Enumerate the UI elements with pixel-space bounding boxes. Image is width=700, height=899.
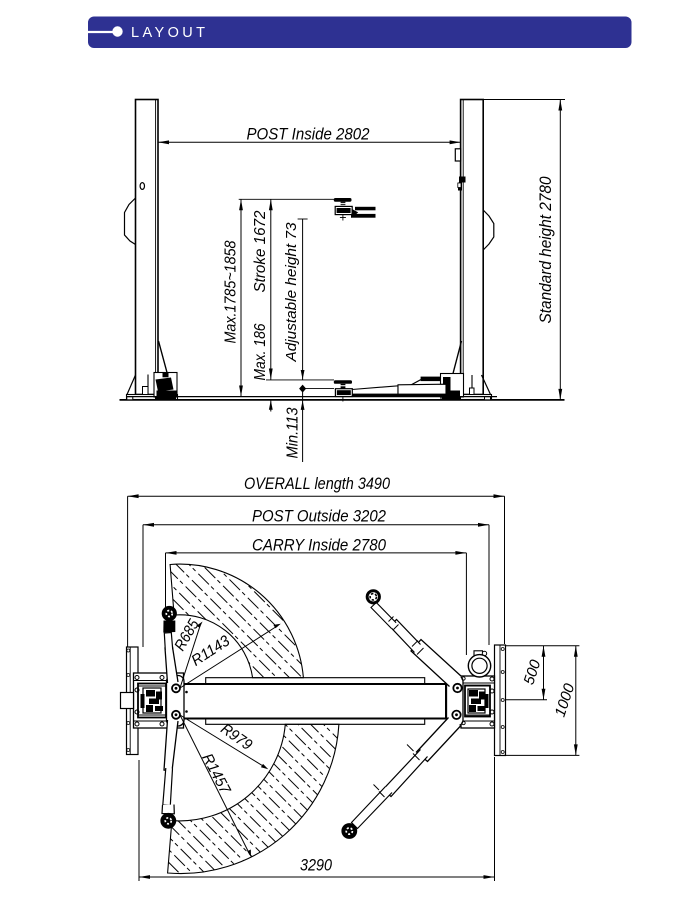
svg-text:Stroke 1672: Stroke 1672 xyxy=(252,210,269,292)
svg-text:POST Outside 3202: POST Outside 3202 xyxy=(252,507,386,526)
svg-text:OVERALL length 3490: OVERALL length 3490 xyxy=(244,474,390,493)
svg-text:3290: 3290 xyxy=(300,856,332,875)
svg-text:CARRY Inside 2780: CARRY Inside 2780 xyxy=(252,536,386,555)
svg-text:Max.1785~1858: Max.1785~1858 xyxy=(223,240,240,343)
svg-text:Max. 186: Max. 186 xyxy=(252,323,269,380)
svg-text:500: 500 xyxy=(521,657,545,687)
svg-text:R1457: R1457 xyxy=(198,751,234,798)
svg-text:Min.113: Min.113 xyxy=(285,407,302,458)
svg-text:POST Inside 2802: POST Inside 2802 xyxy=(247,125,370,144)
svg-text:Adjustable height 73: Adjustable height 73 xyxy=(283,222,300,363)
svg-text:1000: 1000 xyxy=(552,681,579,719)
svg-text:Standard height 2780: Standard height 2780 xyxy=(537,176,555,324)
